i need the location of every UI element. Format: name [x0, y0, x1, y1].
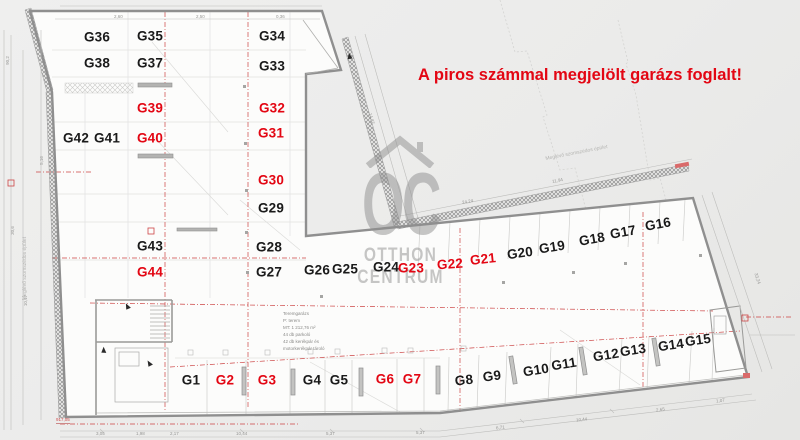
- dimension-number: 6,71: [496, 425, 505, 431]
- info-line: Teremgarázs: [283, 311, 325, 318]
- garage-label-g30: G30: [258, 173, 284, 188]
- dimension-number: 3,05: [96, 431, 105, 436]
- garage-label-g9: G9: [482, 367, 502, 384]
- garage-label-g25: G25: [332, 262, 358, 277]
- neighbor-building-label-left: Meglévő szomszédos épület: [22, 237, 28, 300]
- dimension-number: 0,36: [276, 14, 285, 19]
- dimension-number: 10,44: [236, 431, 247, 436]
- dimension-number: 2,50: [196, 14, 205, 19]
- garage-label-g42: G42: [63, 131, 89, 146]
- garage-label-g40: G40: [137, 131, 163, 146]
- garage-label-g31: G31: [258, 126, 284, 141]
- garage-label-g28: G28: [256, 240, 282, 255]
- garage-label-g2: G2: [216, 373, 234, 388]
- dimension-number: 2,17: [170, 431, 179, 436]
- garage-label-g1: G1: [182, 373, 200, 388]
- garage-label-g26: G26: [304, 263, 330, 278]
- dimension-number: 2,60: [114, 14, 123, 19]
- garage-label-g29: G29: [258, 201, 284, 216]
- garage-label-g39: G39: [137, 101, 163, 116]
- occupied-warning-banner: A piros számmal megjelölt garázs foglalt…: [418, 66, 742, 85]
- garage-label-g33: G33: [259, 59, 285, 74]
- garage-label-g22: G22: [436, 256, 463, 273]
- garage-label-g4: G4: [303, 373, 321, 388]
- info-line: 42 db kerékpár és: [283, 339, 325, 346]
- garage-label-g32: G32: [259, 101, 285, 116]
- garage-label-g6: G6: [376, 372, 394, 387]
- dimension-number: 1,98: [136, 431, 145, 436]
- garage-label-g5: G5: [330, 373, 348, 388]
- garage-label-g35: G35: [137, 29, 163, 44]
- garage-label-g27: G27: [256, 265, 282, 280]
- garage-label-g21: G21: [469, 250, 497, 268]
- red-elevation-note: 917,05: [56, 417, 70, 424]
- garage-label-g41: G41: [94, 131, 120, 146]
- garage-label-g3: G3: [258, 373, 276, 388]
- dimension-number: 5,37: [326, 431, 335, 436]
- property-boundary-line: [618, 20, 672, 222]
- info-line: MT: 1 212,76 m²: [283, 325, 325, 332]
- garage-label-g44: G44: [137, 265, 163, 280]
- garage-label-g24: G24: [373, 260, 399, 275]
- garage-label-g43: G43: [137, 239, 163, 254]
- dimension-number: 5,16: [39, 156, 44, 165]
- garage-label-g34: G34: [259, 29, 285, 44]
- garage-label-g23: G23: [398, 261, 424, 276]
- garage-label-g36: G36: [84, 30, 110, 45]
- garage-label-g37: G37: [137, 56, 163, 71]
- garage-label-g8: G8: [454, 372, 474, 389]
- info-line: 44 db parkoló: [283, 332, 325, 339]
- dimension-number: 5,37: [416, 430, 425, 435]
- dimension-number: 90,2: [5, 56, 10, 65]
- floor-plan-canvas: OC OTTHON CENTRUM G36G35G34G38G37G33G39G…: [0, 0, 800, 440]
- garage-label-g38: G38: [84, 56, 110, 71]
- info-line: P: terem: [283, 318, 325, 325]
- garage-info-text-block: TeremgarázsP: teremMT: 1 212,76 m²44 db …: [283, 311, 325, 353]
- garage-label-g7: G7: [403, 372, 421, 387]
- dimension-number: 30,6: [10, 226, 15, 235]
- info-line: motorkerékpár tároló: [283, 346, 325, 353]
